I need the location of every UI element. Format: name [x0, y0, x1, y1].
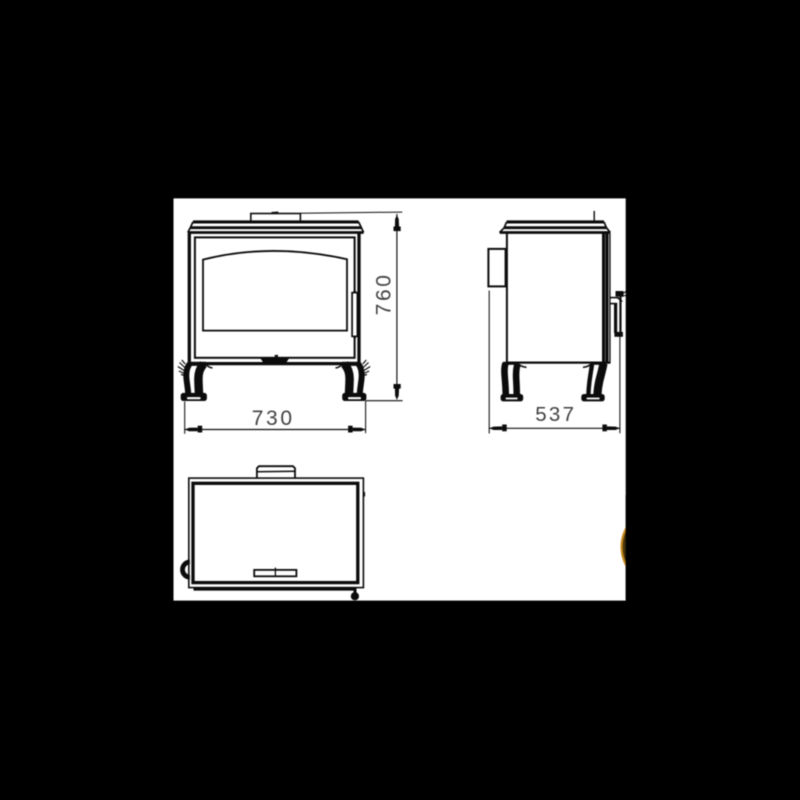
svg-text:730: 730 — [252, 407, 295, 430]
svg-text:760: 760 — [373, 272, 396, 315]
svg-text:537: 537 — [535, 403, 576, 426]
